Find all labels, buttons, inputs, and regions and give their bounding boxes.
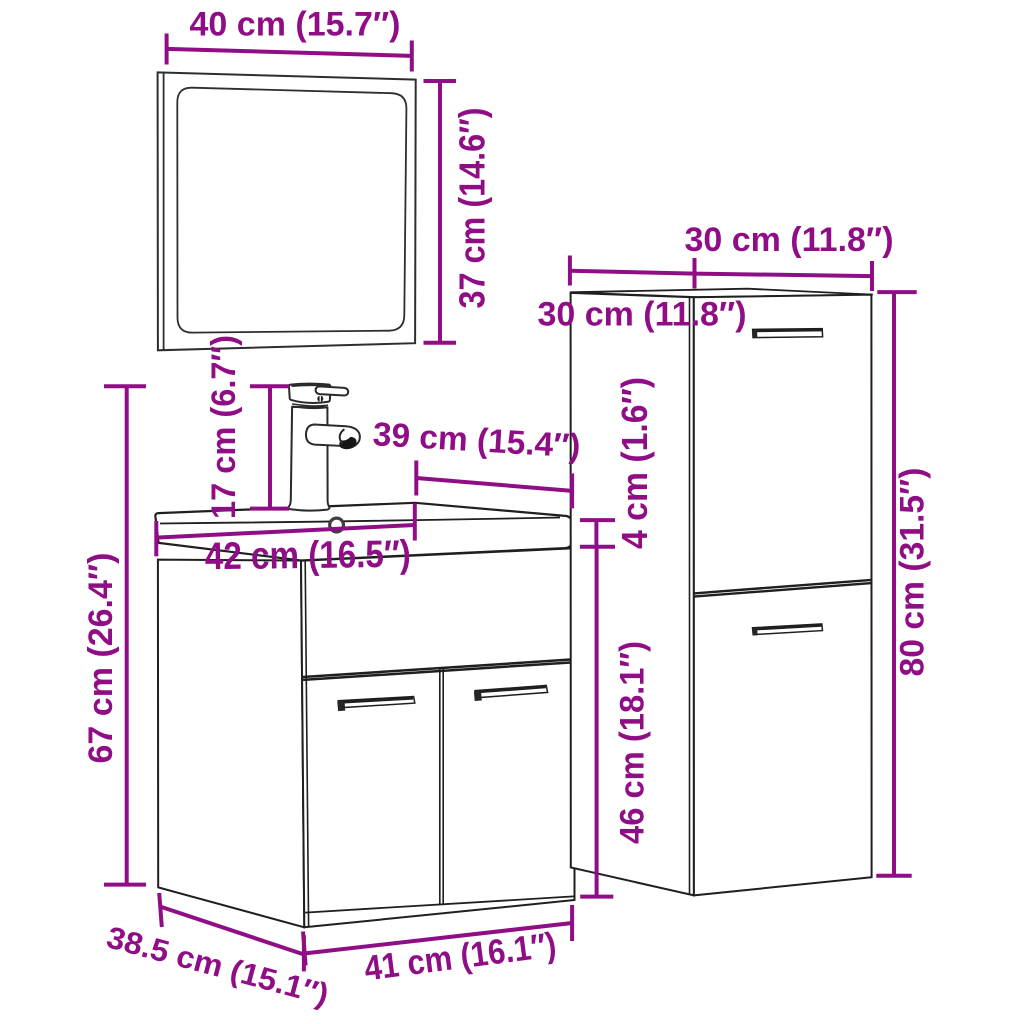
svg-text:4 cm (1.6″): 4 cm (1.6″) — [614, 377, 655, 549]
svg-text:46 cm (18.1″): 46 cm (18.1″) — [614, 641, 652, 844]
svg-text:80 cm (31.5″): 80 cm (31.5″) — [894, 468, 932, 677]
svg-text:42 cm (16.5″): 42 cm (16.5″) — [205, 533, 412, 579]
svg-text:40 cm (15.7″): 40 cm (15.7″) — [190, 6, 401, 44]
svg-text:37 cm (14.6″): 37 cm (14.6″) — [452, 108, 493, 309]
svg-text:30 cm (11.8″): 30 cm (11.8″) — [684, 221, 893, 259]
svg-text:30 cm (11.8″): 30 cm (11.8″) — [537, 296, 746, 334]
svg-text:17 cm (6.7″): 17 cm (6.7″) — [205, 335, 243, 519]
svg-text:67 cm (26.4″): 67 cm (26.4″) — [82, 553, 120, 764]
